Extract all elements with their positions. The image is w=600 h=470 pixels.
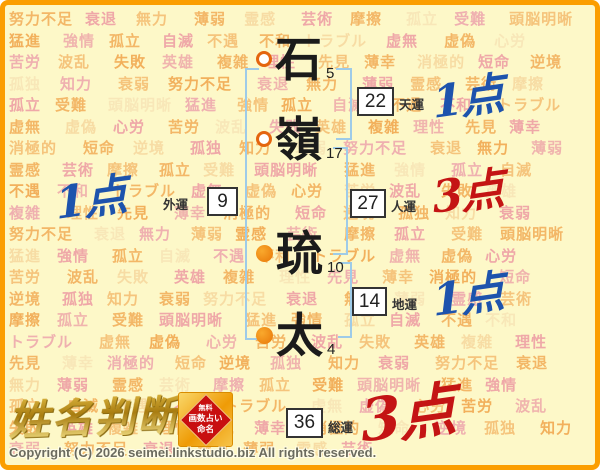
stroke-count: 17: [326, 145, 343, 162]
name-char-row: 嶺 17: [256, 118, 343, 165]
soun-label: 総運: [328, 417, 353, 436]
name-char: 嶺: [275, 118, 322, 165]
tenun-value-box: 22: [357, 87, 394, 116]
soun-value-box: 36: [286, 408, 323, 438]
stroke-count: 10: [327, 259, 344, 276]
chiun-value-box: 14: [352, 287, 387, 316]
tenun-score: 1点: [430, 57, 504, 131]
name-char-row: 石 5: [256, 38, 334, 85]
jinun-score: 3点: [430, 152, 504, 226]
surname-char-marker-icon: [256, 51, 272, 67]
sotoun-score: 1点: [53, 158, 127, 232]
badge-line1: 無料: [199, 405, 213, 414]
name-char: 太: [276, 314, 323, 361]
soun-score: 3点: [358, 361, 457, 458]
chiun-score: 1点: [430, 255, 504, 329]
jinun-label: 人運: [391, 196, 416, 215]
name-char: 石: [275, 38, 322, 85]
site-logo[interactable]: 姓名判断: [7, 381, 181, 447]
name-char-row: 琉 10: [256, 232, 344, 279]
name-char: 琉: [276, 232, 323, 279]
surname-char-marker-icon: [256, 131, 272, 147]
stroke-count: 4: [327, 341, 335, 358]
free-kakusuuranai-badge[interactable]: 無料 画数占い 命名: [178, 392, 233, 447]
seimei-result-page: 努力不足衰退無力薄弱霊感芸術摩擦孤立受難頭脳明晰猛進強情孤立自滅不遇不和トラブル…: [0, 0, 600, 470]
copyright-text: Copyright (C) 2026 seimei.linkstudio.biz…: [9, 445, 376, 460]
chiun-label: 地運: [392, 294, 417, 313]
givenname-char-marker-icon: [256, 245, 273, 262]
stroke-count: 5: [326, 65, 334, 82]
badge-line3: 命名: [197, 424, 214, 435]
sotoun-value-box: 9: [207, 187, 238, 216]
sotoun-label: 外運: [163, 194, 188, 213]
jinun-value-box: 27: [350, 189, 386, 218]
givenname-char-marker-icon: [256, 327, 273, 344]
sotoun-bracket: [245, 68, 259, 340]
badge-line2: 画数占い: [188, 413, 222, 424]
name-char-row: 太 4: [256, 314, 335, 361]
tenun-label: 天運: [399, 94, 424, 113]
